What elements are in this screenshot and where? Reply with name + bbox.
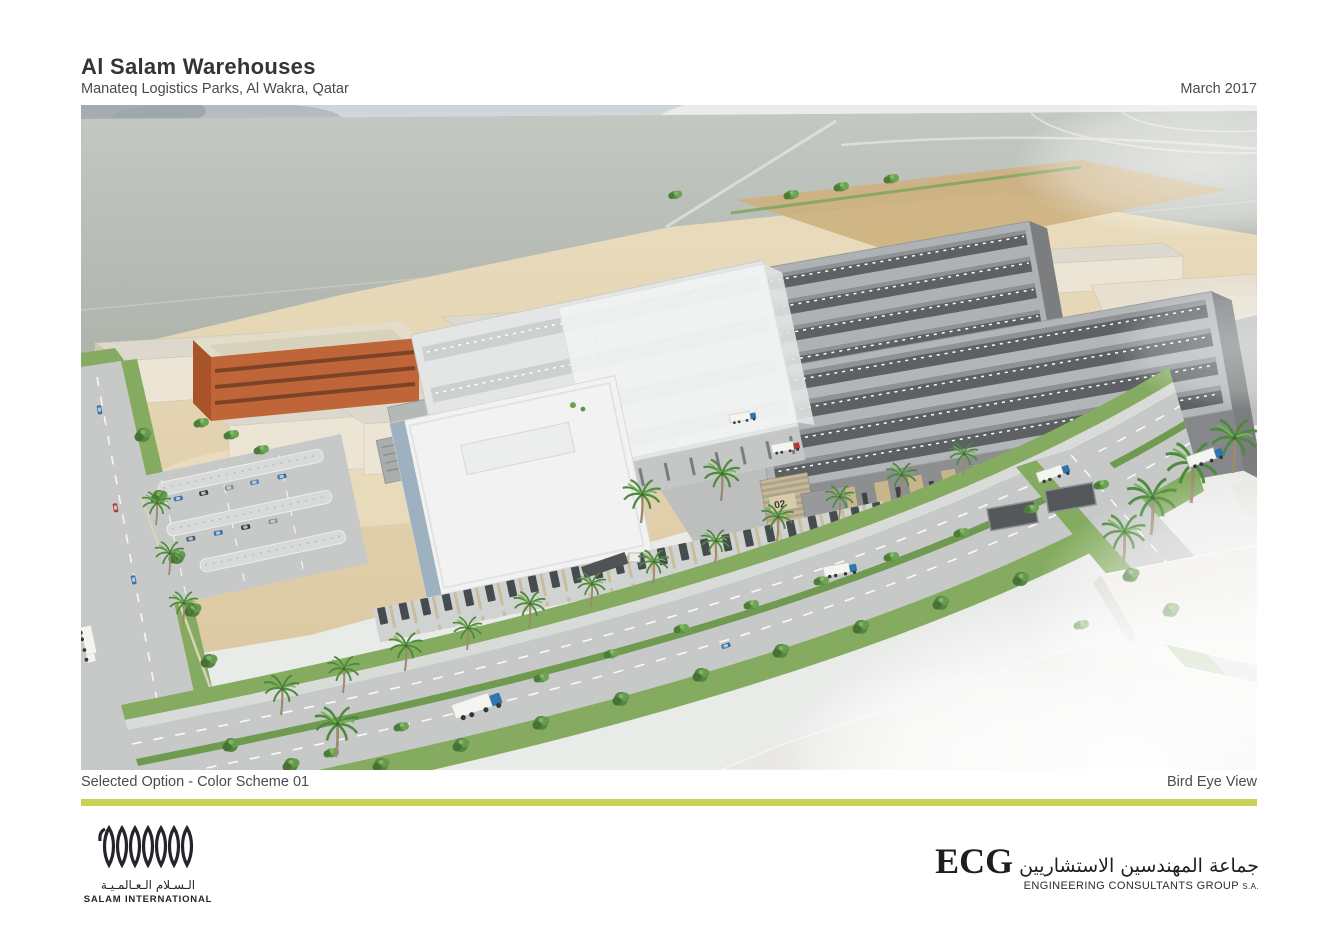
date-label: March 2017 bbox=[1180, 81, 1257, 97]
aerial-rendering: 01 SALAM bbox=[81, 105, 1257, 770]
ecg-arabic-name: جماعة المهندسين الاستشاريين bbox=[1019, 856, 1259, 877]
salam-latin-name: SALAM INTERNATIONAL bbox=[78, 894, 218, 905]
ecg-logo: ECG جماعة المهندسين الاستشاريين ENGINEER… bbox=[935, 846, 1259, 892]
ecg-latin-name: ENGINEERING CONSULTANTS GROUP bbox=[1024, 880, 1239, 892]
page-title: Al Salam Warehouses bbox=[81, 54, 316, 80]
ecg-acronym: ECG bbox=[935, 846, 1013, 877]
caption-right: Bird Eye View bbox=[1167, 774, 1257, 790]
ecg-suffix: S.A. bbox=[1242, 882, 1259, 891]
salam-loops-icon bbox=[88, 824, 208, 872]
presentation-sheet: Al Salam Warehouses Manateq Logistics Pa… bbox=[0, 0, 1337, 945]
caption-left: Selected Option - Color Scheme 01 bbox=[81, 774, 309, 790]
salam-arabic-name: الـسـلام الـعـالمـيـة bbox=[78, 878, 218, 892]
accent-divider-bar bbox=[81, 799, 1257, 806]
salam-international-logo: الـسـلام الـعـالمـيـة SALAM INTERNATIONA… bbox=[78, 824, 218, 905]
page-subtitle: Manateq Logistics Parks, Al Wakra, Qatar bbox=[81, 81, 349, 97]
